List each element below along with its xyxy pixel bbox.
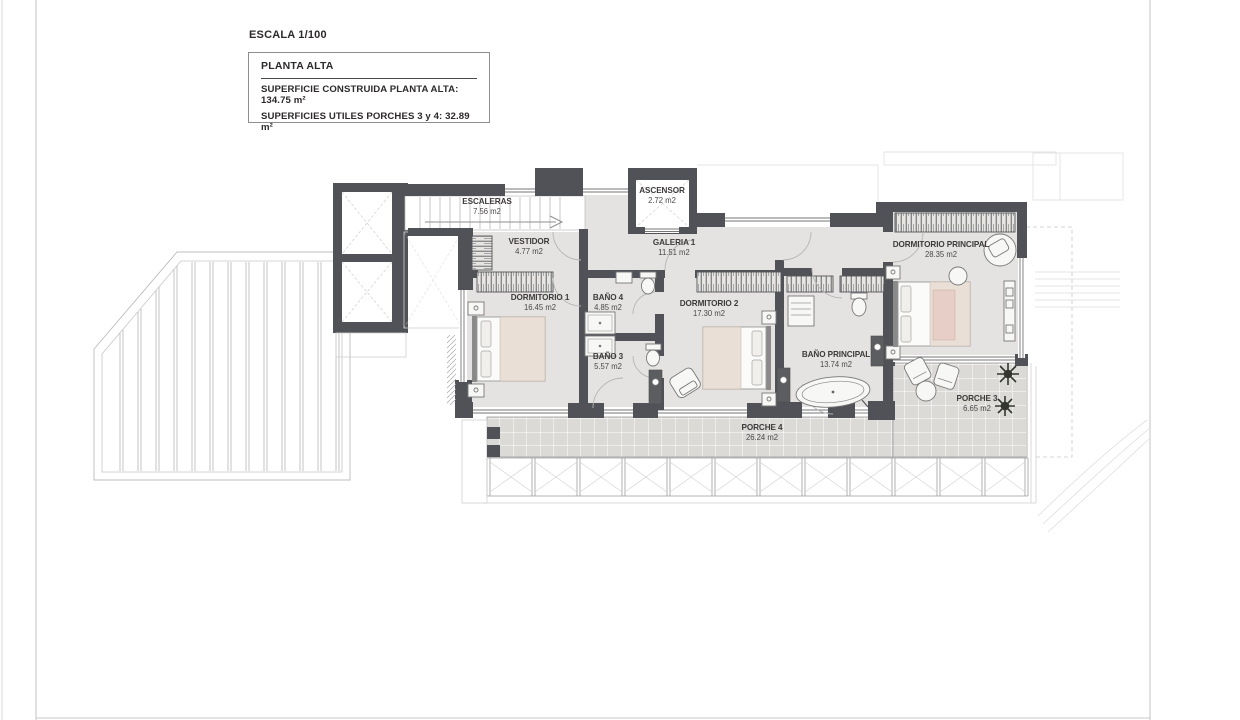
plant (997, 363, 1019, 385)
room-label-galeria-1: GALERIA 1 11.51 m2 (653, 238, 695, 257)
plant (995, 396, 1015, 416)
porch-area-line: SUPERFICIES UTILES PORCHES 3 y 4: 32.89 … (261, 111, 477, 133)
room-label-bano-4: BAÑO 4 4.85 m2 (593, 293, 623, 312)
room-label-dormitorio-2: DORMITORIO 2 17.30 m2 (680, 299, 739, 318)
built-area-line: SUPERFICIE CONSTRUIDA PLANTA ALTA: 134.7… (261, 84, 477, 106)
room-label-dormitorio-1: DORMITORIO 1 16.45 m2 (511, 293, 570, 312)
room-label-ascensor: ASCENSOR 2.72 m2 (639, 186, 684, 205)
scale-label: ESCALA 1/100 (249, 29, 327, 41)
room-label-dormitorio-principal: DORMITORIO PRINCIPAL 28.35 m2 (893, 240, 990, 259)
room-label-escaleras: ESCALERAS 7.56 m2 (462, 197, 511, 216)
room-label-porche-4: PORCHE 4 26.24 m2 (742, 423, 783, 442)
room-label-porche-3: PORCHE 3 6.65 m2 (957, 394, 998, 413)
title-box: PLANTA ALTA SUPERFICIE CONSTRUIDA PLANTA… (248, 52, 490, 123)
porche-4-floor (487, 417, 893, 457)
room-label-bano-3: BAÑO 3 5.57 m2 (593, 352, 623, 371)
room-label-bano-principal: BAÑO PRINCIPAL 13.74 m2 (802, 350, 870, 369)
plan-title: PLANTA ALTA (261, 60, 477, 79)
floor-plan-sheet: ESCALA 1/100 PLANTA ALTA SUPERFICIE CONS… (0, 0, 1240, 720)
room-label-vestidor: VESTIDOR 4.77 m2 (509, 237, 550, 256)
roof-terrace (94, 252, 350, 480)
